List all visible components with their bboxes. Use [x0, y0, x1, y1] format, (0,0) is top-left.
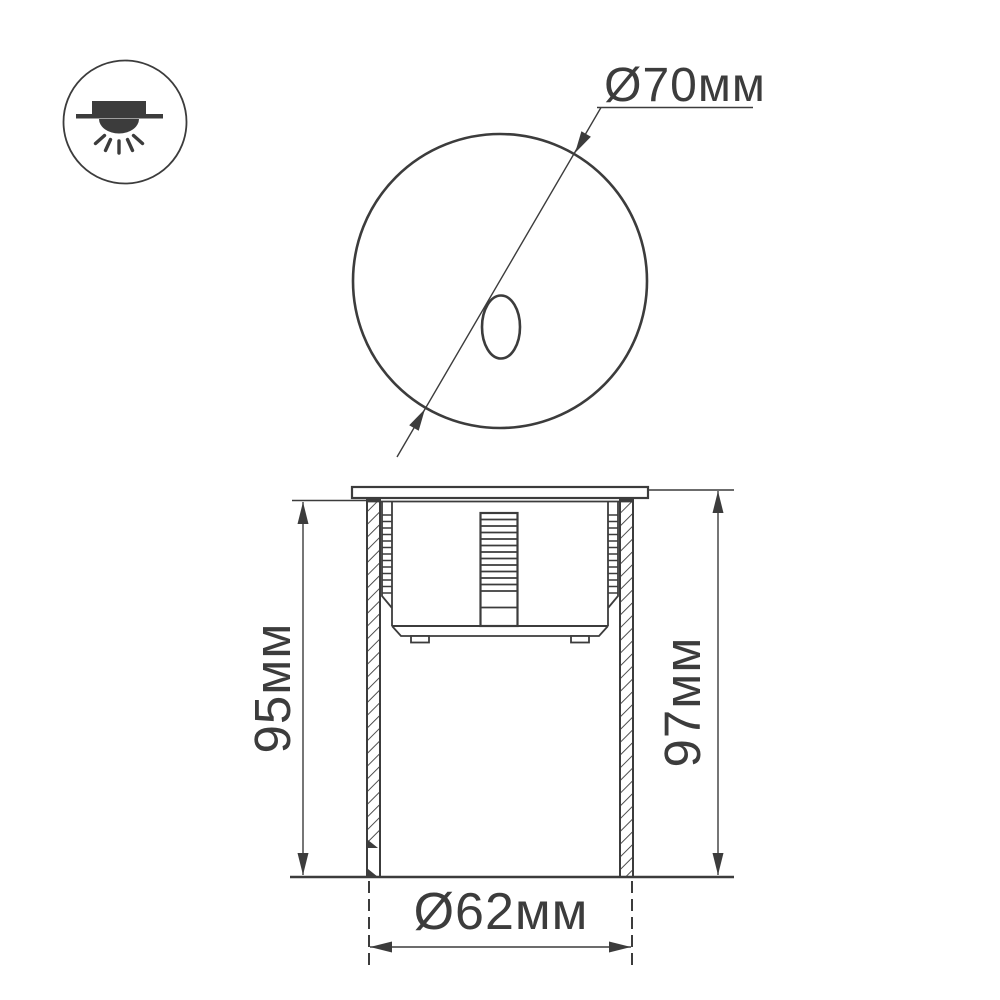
left-dim-arrow-up [298, 502, 309, 524]
drawing-canvas: Ø70мм [0, 0, 1000, 1000]
right-height-label: 97мм [654, 637, 711, 768]
front-view: Ø70мм [353, 59, 766, 457]
right-thread-strip-outline [608, 502, 618, 627]
dimension-left: 95мм [244, 501, 367, 876]
dimension-right: 97мм [648, 490, 734, 875]
right-dim-arrow-up [713, 491, 724, 513]
icon-lamp-dome [99, 119, 139, 134]
diameter-leader-line [397, 108, 601, 458]
left-wall-hatch [367, 500, 380, 843]
left-dim-arrow-down [298, 853, 309, 875]
diameter-arrow-top [575, 131, 591, 153]
left-height-label: 95мм [244, 623, 301, 754]
recessed-downlight-icon [64, 61, 187, 184]
dimension-bottom: Ø62мм [370, 883, 631, 953]
heatsink-column-outline [481, 513, 518, 626]
diameter-arrow-bottom [409, 409, 425, 431]
icon-ceiling-bar [76, 114, 163, 119]
light-aperture [482, 296, 520, 359]
left-thread-strip-ribs [382, 515, 392, 593]
side-view: 95мм 97мм Ø62мм [244, 487, 734, 968]
base-foot-left [411, 636, 429, 643]
bottom-dim-arrow-right [609, 942, 631, 953]
base-plate [392, 626, 608, 636]
flange-bezel [352, 487, 648, 498]
icon-lamp-housing [92, 101, 146, 116]
bottom-dim-arrow-left [370, 942, 392, 953]
body-diameter-label: Ø62мм [414, 883, 589, 941]
right-wall-hatch [620, 500, 633, 877]
technical-drawing: Ø70мм [0, 0, 1000, 1000]
left-thread-strip-outline [382, 502, 392, 627]
base-foot-right [571, 636, 589, 643]
front-diameter-label: Ø70мм [604, 59, 766, 112]
right-thread-strip-ribs [608, 515, 618, 593]
right-dim-arrow-down [713, 853, 724, 875]
icon-light-rays [96, 136, 143, 154]
